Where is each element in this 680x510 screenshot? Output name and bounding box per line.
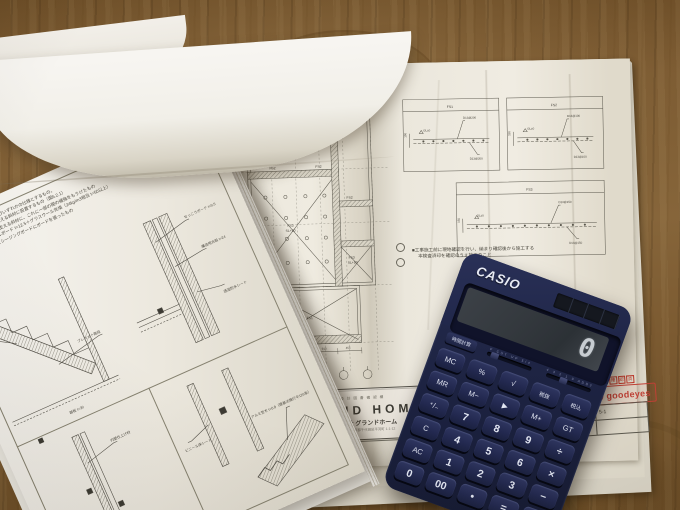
calculator-key[interactable]: ▶ [488, 392, 521, 420]
calculator-key[interactable]: × [535, 460, 568, 488]
calculator-key[interactable]: − [527, 483, 560, 510]
svg-text:FS3: FS3 [349, 256, 355, 260]
svg-text:せっこうボード t=9.5: せっこうボード t=9.5 [183, 201, 216, 219]
svg-text:FS3: FS3 [526, 188, 532, 192]
title-block-header: 設 計 図 書 確 認 欄 [340, 395, 384, 402]
calculator-key[interactable]: 7 [449, 403, 482, 431]
svg-text:D13@200: D13@200 [470, 156, 484, 160]
calculator-key[interactable]: AC [401, 437, 434, 465]
calculator-key[interactable]: M− [457, 381, 490, 409]
rebar-detail-drawing: FS1 GL±0 150 D13@200 D13@200 FS2 GL±0 15… [398, 86, 615, 266]
calculator-key[interactable]: 2 [464, 460, 497, 488]
calculator-key[interactable]: 6 [503, 449, 536, 477]
svg-text:透湿防水シート: 透湿防水シート [223, 279, 248, 294]
stamp-text: goodeyes [606, 387, 651, 400]
calculator-key[interactable]: ÷ [543, 438, 576, 466]
svg-text:D13@100: D13@100 [574, 155, 588, 159]
svg-text:910: 910 [322, 347, 327, 351]
svg-text:FS2: FS2 [346, 196, 352, 200]
svg-text:150: 150 [507, 131, 511, 136]
calculator-key[interactable]: 税込 [559, 392, 592, 420]
svg-text:SL+50: SL+50 [286, 229, 296, 233]
svg-text:D13@200: D13@200 [463, 116, 477, 120]
svg-text:D13@100: D13@100 [567, 114, 581, 118]
sheet-margin-mark [396, 258, 405, 267]
svg-text:FS2: FS2 [315, 165, 321, 169]
svg-text:150: 150 [457, 218, 461, 223]
svg-text:D13@150: D13@150 [558, 200, 572, 204]
svg-text:FS2: FS2 [551, 103, 557, 107]
calculator-key[interactable]: 3 [495, 471, 528, 499]
calculator-key[interactable]: 0 [393, 460, 426, 488]
calculator-key[interactable]: % [465, 358, 498, 386]
svg-text:FS1: FS1 [447, 105, 453, 109]
calculator-key[interactable]: 税抜 [528, 381, 561, 409]
calculator-key[interactable]: MC [434, 347, 467, 375]
svg-text:150: 150 [403, 133, 407, 138]
svg-text:アルミ笠木 t=0.8（建基法施行令126条）: アルミ笠木 t=0.8（建基法施行令126条） [250, 388, 312, 419]
desk-photo-scene: FS1 FS2 FS2 FS3 SL+50 FS2 FS3 SL+50 FS1 … [0, 0, 680, 510]
calculator-display-value: 0 [573, 333, 609, 369]
calculator-key[interactable]: MR [426, 369, 459, 397]
svg-text:455: 455 [346, 346, 351, 350]
svg-text:GL±0: GL±0 [477, 213, 485, 217]
calculator-key[interactable]: ⁺/₋ [418, 392, 451, 420]
svg-text:FS3: FS3 [287, 224, 293, 228]
calculator-key[interactable]: √ [497, 370, 530, 398]
svg-text:構造用合板 t=24: 構造用合板 t=24 [200, 234, 226, 249]
calculator-key[interactable]: M+ [520, 404, 553, 432]
svg-text:FS2: FS2 [269, 166, 275, 170]
calculator-key[interactable]: C [409, 414, 442, 442]
calculator-key[interactable]: 8 [480, 415, 513, 443]
calculator-key[interactable]: GT [551, 415, 584, 443]
calculator-key[interactable]: 5 [472, 437, 505, 465]
svg-text:GL±0: GL±0 [527, 127, 535, 131]
calculator-key[interactable]: 00 [424, 471, 457, 499]
calculator-key[interactable]: 4 [441, 426, 474, 454]
calculator-key[interactable]: 9 [512, 426, 545, 454]
svg-text:FS1: FS1 [307, 316, 313, 320]
svg-text:ビニール床シート: ビニール床シート [184, 437, 213, 453]
calculator-key[interactable]: 1 [432, 448, 465, 476]
calculator-key[interactable]: • [456, 482, 489, 510]
svg-text:SL+50: SL+50 [348, 260, 358, 264]
sheet-margin-mark [396, 243, 405, 252]
svg-text:内壁仕上げ材: 内壁仕上げ材 [109, 429, 131, 443]
svg-text:GL±0: GL±0 [423, 128, 431, 132]
